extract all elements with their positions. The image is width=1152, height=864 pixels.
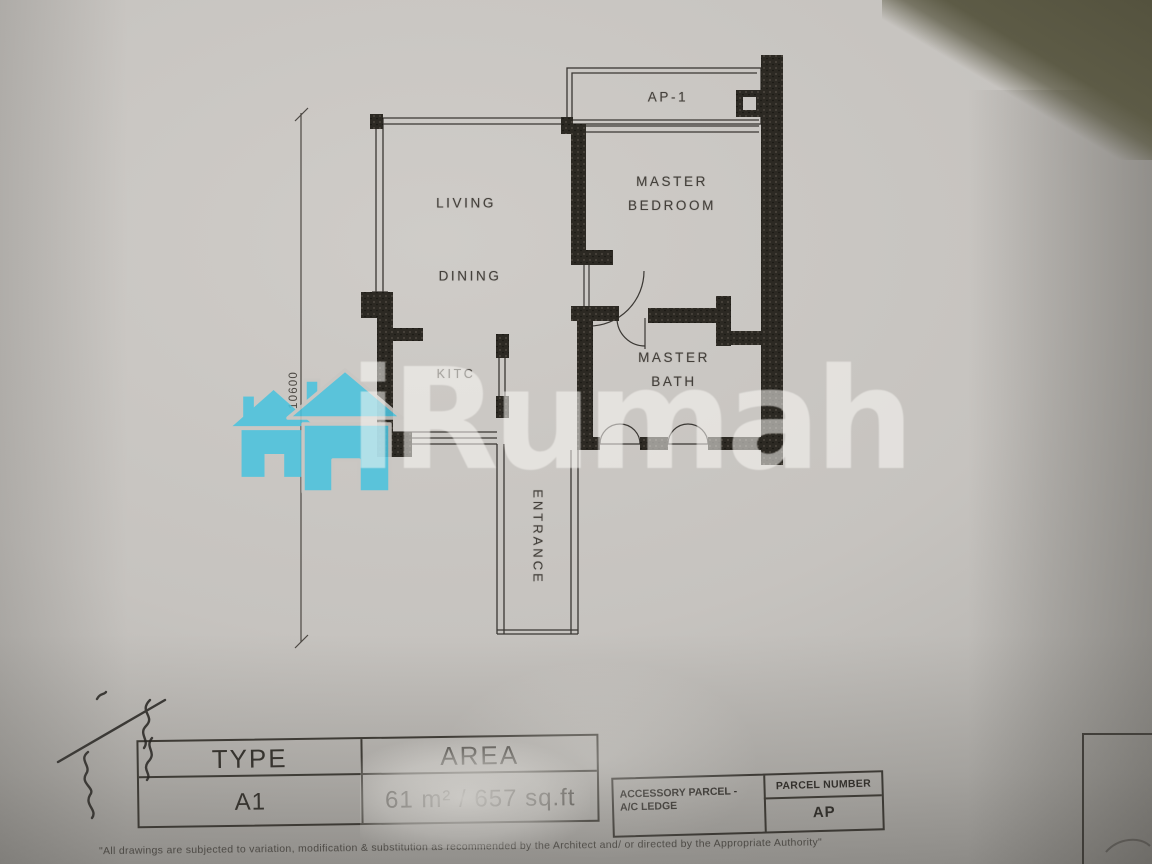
floor-plan-photo: LIVING DINING MASTER BEDROOM KITC MASTER… bbox=[0, 0, 1152, 864]
watermark-brand-text: iRumah bbox=[349, 351, 908, 491]
